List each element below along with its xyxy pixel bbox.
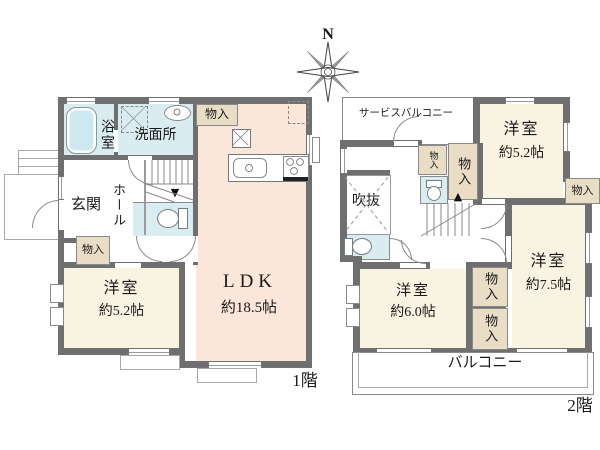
washroom-label: 洗面所 [118, 128, 193, 143]
closet-2f-hall-small: 物入 [418, 145, 447, 175]
floor2-label: 2階 [558, 397, 600, 416]
window-bay [312, 137, 320, 163]
wall [179, 262, 185, 355]
door-bedroom-2f-c [481, 238, 507, 263]
hall-label: ホール [109, 176, 125, 234]
window [505, 98, 535, 104]
window [341, 148, 347, 174]
door-washroom [128, 160, 153, 185]
wall [58, 97, 312, 104]
refrigerator-space [288, 101, 309, 124]
door-bedroom-2f-a [481, 204, 507, 229]
floor1-label: 1階 [283, 372, 327, 391]
bath-label: 浴室 [96, 112, 114, 158]
bathtub [66, 107, 97, 154]
closet-label: 物入 [483, 314, 497, 344]
window [148, 98, 180, 104]
closet-2f-east: 物入 [565, 178, 600, 204]
stove-base [283, 177, 308, 181]
stairs-up-arrow: ▲ [451, 191, 465, 203]
closet-label: 物入 [82, 244, 104, 256]
service-balcony-label: サービスバルコニー [350, 108, 462, 120]
door-gap [115, 263, 141, 268]
casement-window [50, 307, 64, 326]
bedroom-2f-a-size-label: 約5.2帖 [480, 146, 563, 161]
closet-label: 物入 [572, 185, 594, 197]
terrace-step [197, 368, 257, 383]
window [66, 98, 96, 104]
compass-star-icon [297, 42, 359, 102]
bedroom-2f-c-size-label: 約7.5帖 [505, 278, 592, 293]
room-bedroom-2f-c [512, 205, 585, 348]
bedroom-2f-a-label: 洋室 [480, 121, 563, 139]
wall [473, 97, 480, 147]
ldk-size-label: 約18.5帖 [196, 300, 302, 317]
bedroom-1f-size-label: 約5.2帖 [64, 304, 179, 319]
casement-window [50, 284, 64, 303]
wall [340, 170, 390, 175]
door-gap [59, 200, 64, 230]
ldk-label: LDK [200, 272, 300, 293]
bedroom-2f-c-label: 洋室 [505, 253, 592, 271]
window [586, 296, 592, 328]
closet-washroom-side: 物入 [196, 104, 238, 126]
toilet-2f-hall-bowl [427, 186, 441, 201]
bedroom-2f-b-label: 洋室 [360, 283, 466, 300]
window [564, 122, 570, 152]
closet-label: 物入 [456, 157, 470, 187]
kitchen-sink [233, 158, 267, 178]
closet-hall: 物入 [76, 236, 110, 265]
washroom-sink [164, 105, 191, 121]
terrace-step [120, 355, 180, 370]
closet-label: 物入 [428, 151, 438, 169]
window [128, 349, 170, 355]
toilet-1f [178, 208, 188, 229]
floor-plan-canvas: 物入 物入 浴室 洗面所 玄関 ホール LDK 約18.5帖 洋室 約5.2帖 … [0, 0, 600, 450]
closet-2f-mid-lower: 物入 [472, 308, 508, 350]
compass-north-label: N [318, 26, 338, 44]
closet-label: 物入 [483, 272, 497, 302]
window [59, 176, 64, 200]
entrance-label: 玄関 [64, 197, 108, 214]
bedroom-1f-label: 洋室 [64, 280, 179, 298]
room-ldk [196, 104, 306, 361]
window [208, 362, 262, 368]
stairs-down-arrow: ▼ [168, 187, 182, 199]
casement-window [346, 285, 360, 304]
door-bedroom-1f [136, 236, 162, 262]
toilet-2f-west-bowl [352, 238, 372, 255]
casement-window [346, 308, 360, 327]
cupboard [232, 129, 251, 148]
stove [283, 156, 309, 178]
stairs-2f [421, 203, 477, 236]
toilet-1f-bowl [157, 209, 179, 228]
closet-label: 物入 [205, 108, 229, 121]
closet-2f-mid-upper: 物入 [472, 267, 508, 307]
bedroom-2f-b-size-label: 約6.0帖 [360, 305, 466, 320]
balcony-label: バルコニー [430, 355, 540, 372]
void-label: 吹抜 [343, 194, 389, 209]
